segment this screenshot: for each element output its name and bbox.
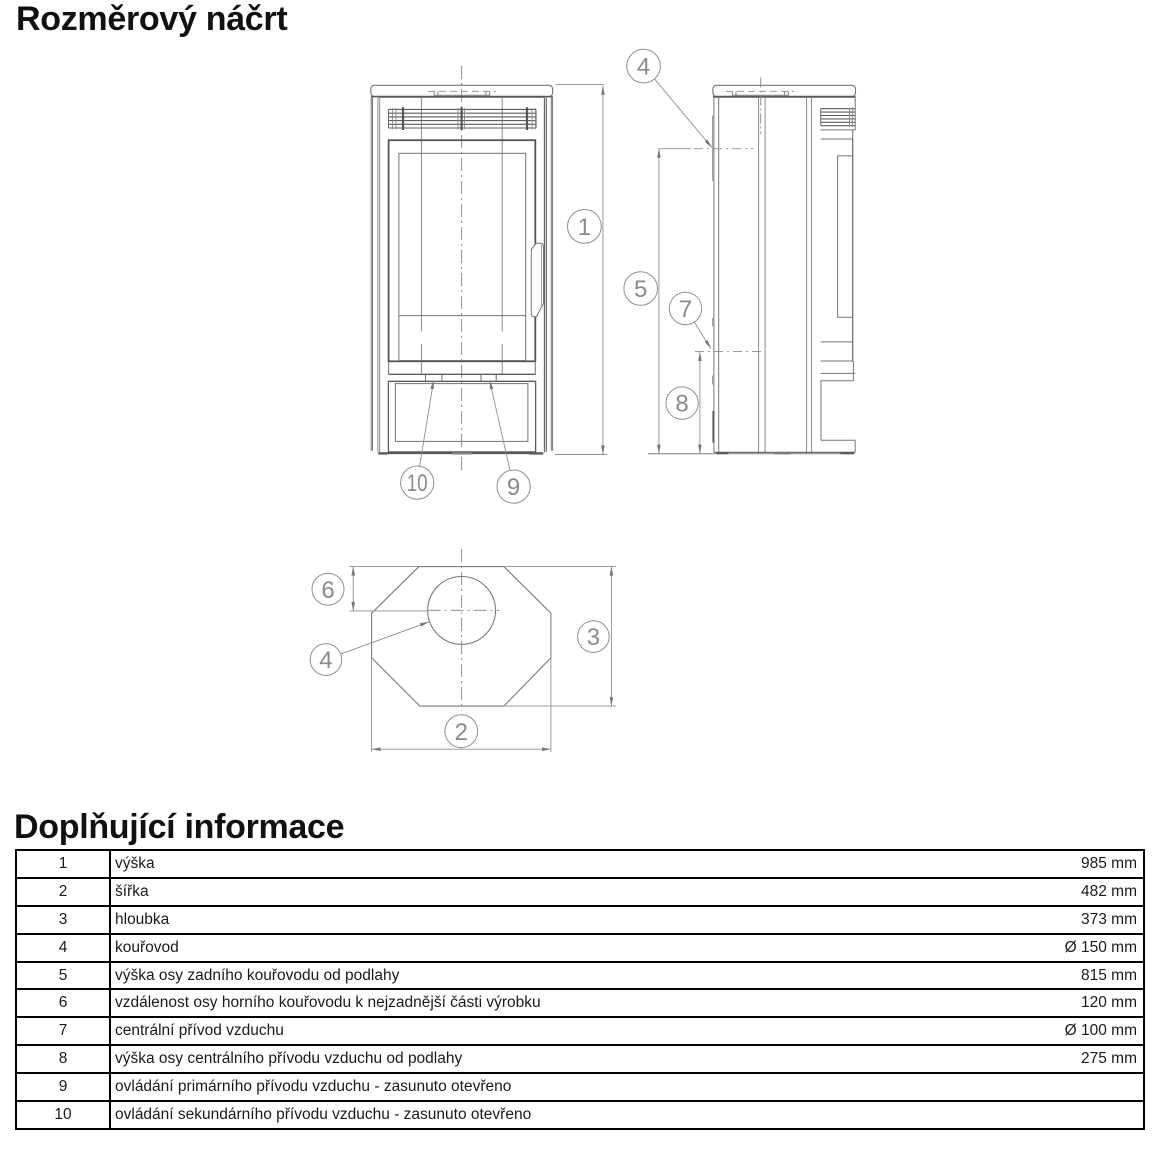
- svg-text:2: 2: [455, 719, 468, 746]
- svg-text:1: 1: [578, 214, 591, 241]
- svg-text:8: 8: [675, 391, 688, 418]
- svg-text:6: 6: [321, 577, 334, 604]
- svg-text:10: 10: [407, 470, 428, 497]
- svg-text:4: 4: [319, 647, 332, 674]
- svg-text:3: 3: [587, 624, 600, 651]
- svg-text:7: 7: [679, 296, 692, 323]
- svg-text:5: 5: [634, 276, 647, 303]
- svg-text:4: 4: [637, 54, 650, 81]
- svg-text:9: 9: [507, 474, 520, 501]
